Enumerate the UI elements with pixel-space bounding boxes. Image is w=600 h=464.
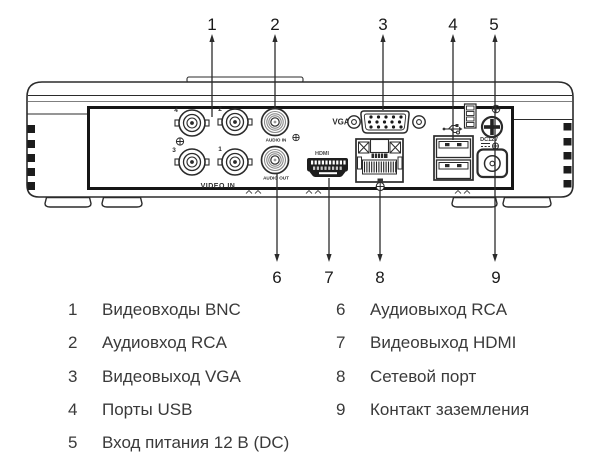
- legend-item-7: 7 Видеовыход HDMI: [336, 332, 516, 354]
- crosshair-screw-icon: [176, 138, 183, 145]
- legend-label: Сетевой порт: [370, 366, 476, 388]
- device-feet: [45, 198, 551, 208]
- legend-label: Видеовходы BNC: [102, 299, 241, 321]
- device-rear-panel-drawing: 4 2 3 1 VIDEO IN: [0, 0, 600, 300]
- legend-number: 6: [336, 299, 370, 321]
- bnc-label-2: 2: [218, 106, 222, 113]
- legend-label: Видеовыход HDMI: [370, 332, 516, 354]
- rear-panel-diagram-page: 4 2 3 1 VIDEO IN: [0, 0, 600, 464]
- bnc-label-4: 4: [174, 107, 178, 114]
- callout-line-8: [377, 191, 382, 262]
- legend-number: 2: [68, 332, 102, 354]
- dc-power-jack: [478, 150, 508, 178]
- legend-number: 8: [336, 366, 370, 388]
- ethernet-port: [356, 139, 403, 191]
- bnc-label-1: 1: [218, 146, 222, 153]
- ethernet-clip-tab: [371, 140, 389, 153]
- rca-audio-out-jack: [262, 147, 289, 174]
- callout-number-4: 4: [448, 15, 457, 34]
- callout-number-9: 9: [491, 268, 500, 287]
- vga-screw-right: [413, 116, 425, 128]
- legend-number: 4: [68, 399, 102, 421]
- audio-out-label: AUDIO OUT: [263, 176, 289, 181]
- legend-item-3: 3 Видеовыход VGA: [68, 366, 241, 388]
- legend-item-8: 8 Сетевой порт: [336, 366, 476, 388]
- legend-item-4: 4 Порты USB: [68, 399, 192, 421]
- hdmi-label: HDMI: [315, 151, 330, 157]
- callout-number-3: 3: [378, 15, 387, 34]
- legend-number: 1: [68, 299, 102, 321]
- legend-number: 5: [68, 432, 102, 454]
- callout-number-8: 8: [375, 268, 384, 287]
- video-in-label: VIDEO IN: [201, 183, 236, 190]
- legend-number: 9: [336, 399, 370, 421]
- legend-label: Вход питания 12 В (DC): [102, 432, 289, 454]
- legend-label: Аудиовход RCA: [102, 332, 227, 354]
- crosshair-screw-icon: [293, 134, 299, 140]
- legend-label: Видеовыход VGA: [102, 366, 241, 388]
- legend-label: Контакт заземления: [370, 399, 529, 421]
- jumper-block: [465, 104, 477, 128]
- legend-number: 7: [336, 332, 370, 354]
- bnc-label-3: 3: [172, 147, 176, 154]
- callout-number-6: 6: [272, 268, 281, 287]
- ground-screw: [482, 117, 502, 137]
- legend-number: 3: [68, 366, 102, 388]
- legend-item-5: 5 Вход питания 12 В (DC): [68, 432, 289, 454]
- crosshair-screw-icon: [492, 105, 500, 113]
- callout-number-5: 5: [489, 15, 498, 34]
- callout-number-1: 1: [207, 15, 216, 34]
- callout-number-2: 2: [270, 15, 279, 34]
- legend-item-2: 2 Аудиовход RCA: [68, 332, 227, 354]
- vga-screw-left: [348, 116, 360, 128]
- audio-in-label: AUDIO IN: [266, 138, 287, 143]
- legend-item-6: 6 Аудиовыход RCA: [336, 299, 507, 321]
- legend-item-9: 9 Контакт заземления: [336, 399, 529, 421]
- legend-label: Аудиовыход RCA: [370, 299, 507, 321]
- rca-audio-in-jack: [262, 109, 289, 136]
- legend-label: Порты USB: [102, 399, 192, 421]
- legend-item-1: 1 Видеовходы BNC: [68, 299, 241, 321]
- callout-number-7: 7: [324, 268, 333, 287]
